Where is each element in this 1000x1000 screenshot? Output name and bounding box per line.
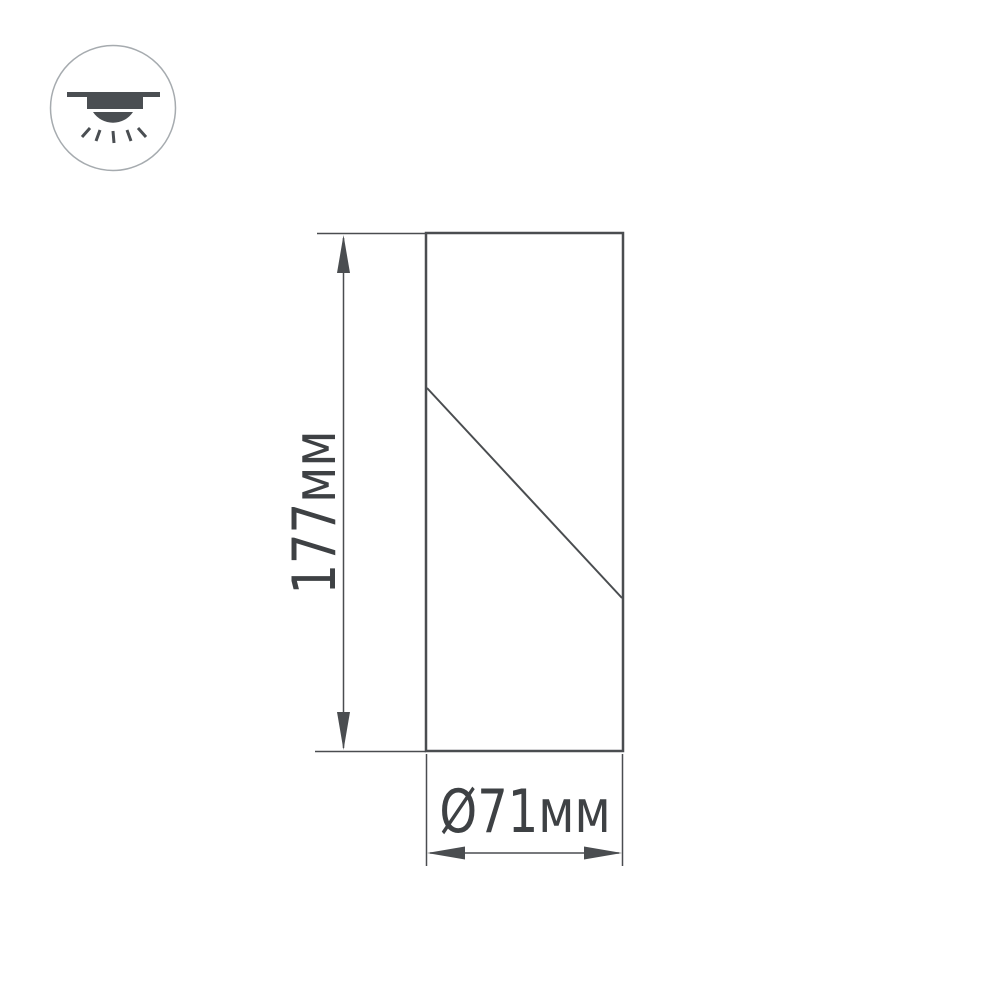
height-arrow-up bbox=[337, 235, 350, 273]
height-dimension-text: 177мм bbox=[287, 430, 343, 594]
diameter-dimension-label: Ø71мм bbox=[405, 784, 645, 840]
technical-dimension-drawing-page: 177мм Ø71мм bbox=[0, 0, 1000, 1000]
product-diagonal-seam bbox=[427, 388, 622, 598]
diameter-arrow-left bbox=[427, 847, 465, 860]
height-dimension-label: 177мм bbox=[287, 415, 343, 615]
dimension-drawing bbox=[0, 0, 1000, 1000]
height-arrow-down bbox=[337, 712, 350, 750]
diameter-dimension-text: Ø71мм bbox=[439, 784, 610, 840]
diameter-arrow-right bbox=[584, 847, 622, 860]
